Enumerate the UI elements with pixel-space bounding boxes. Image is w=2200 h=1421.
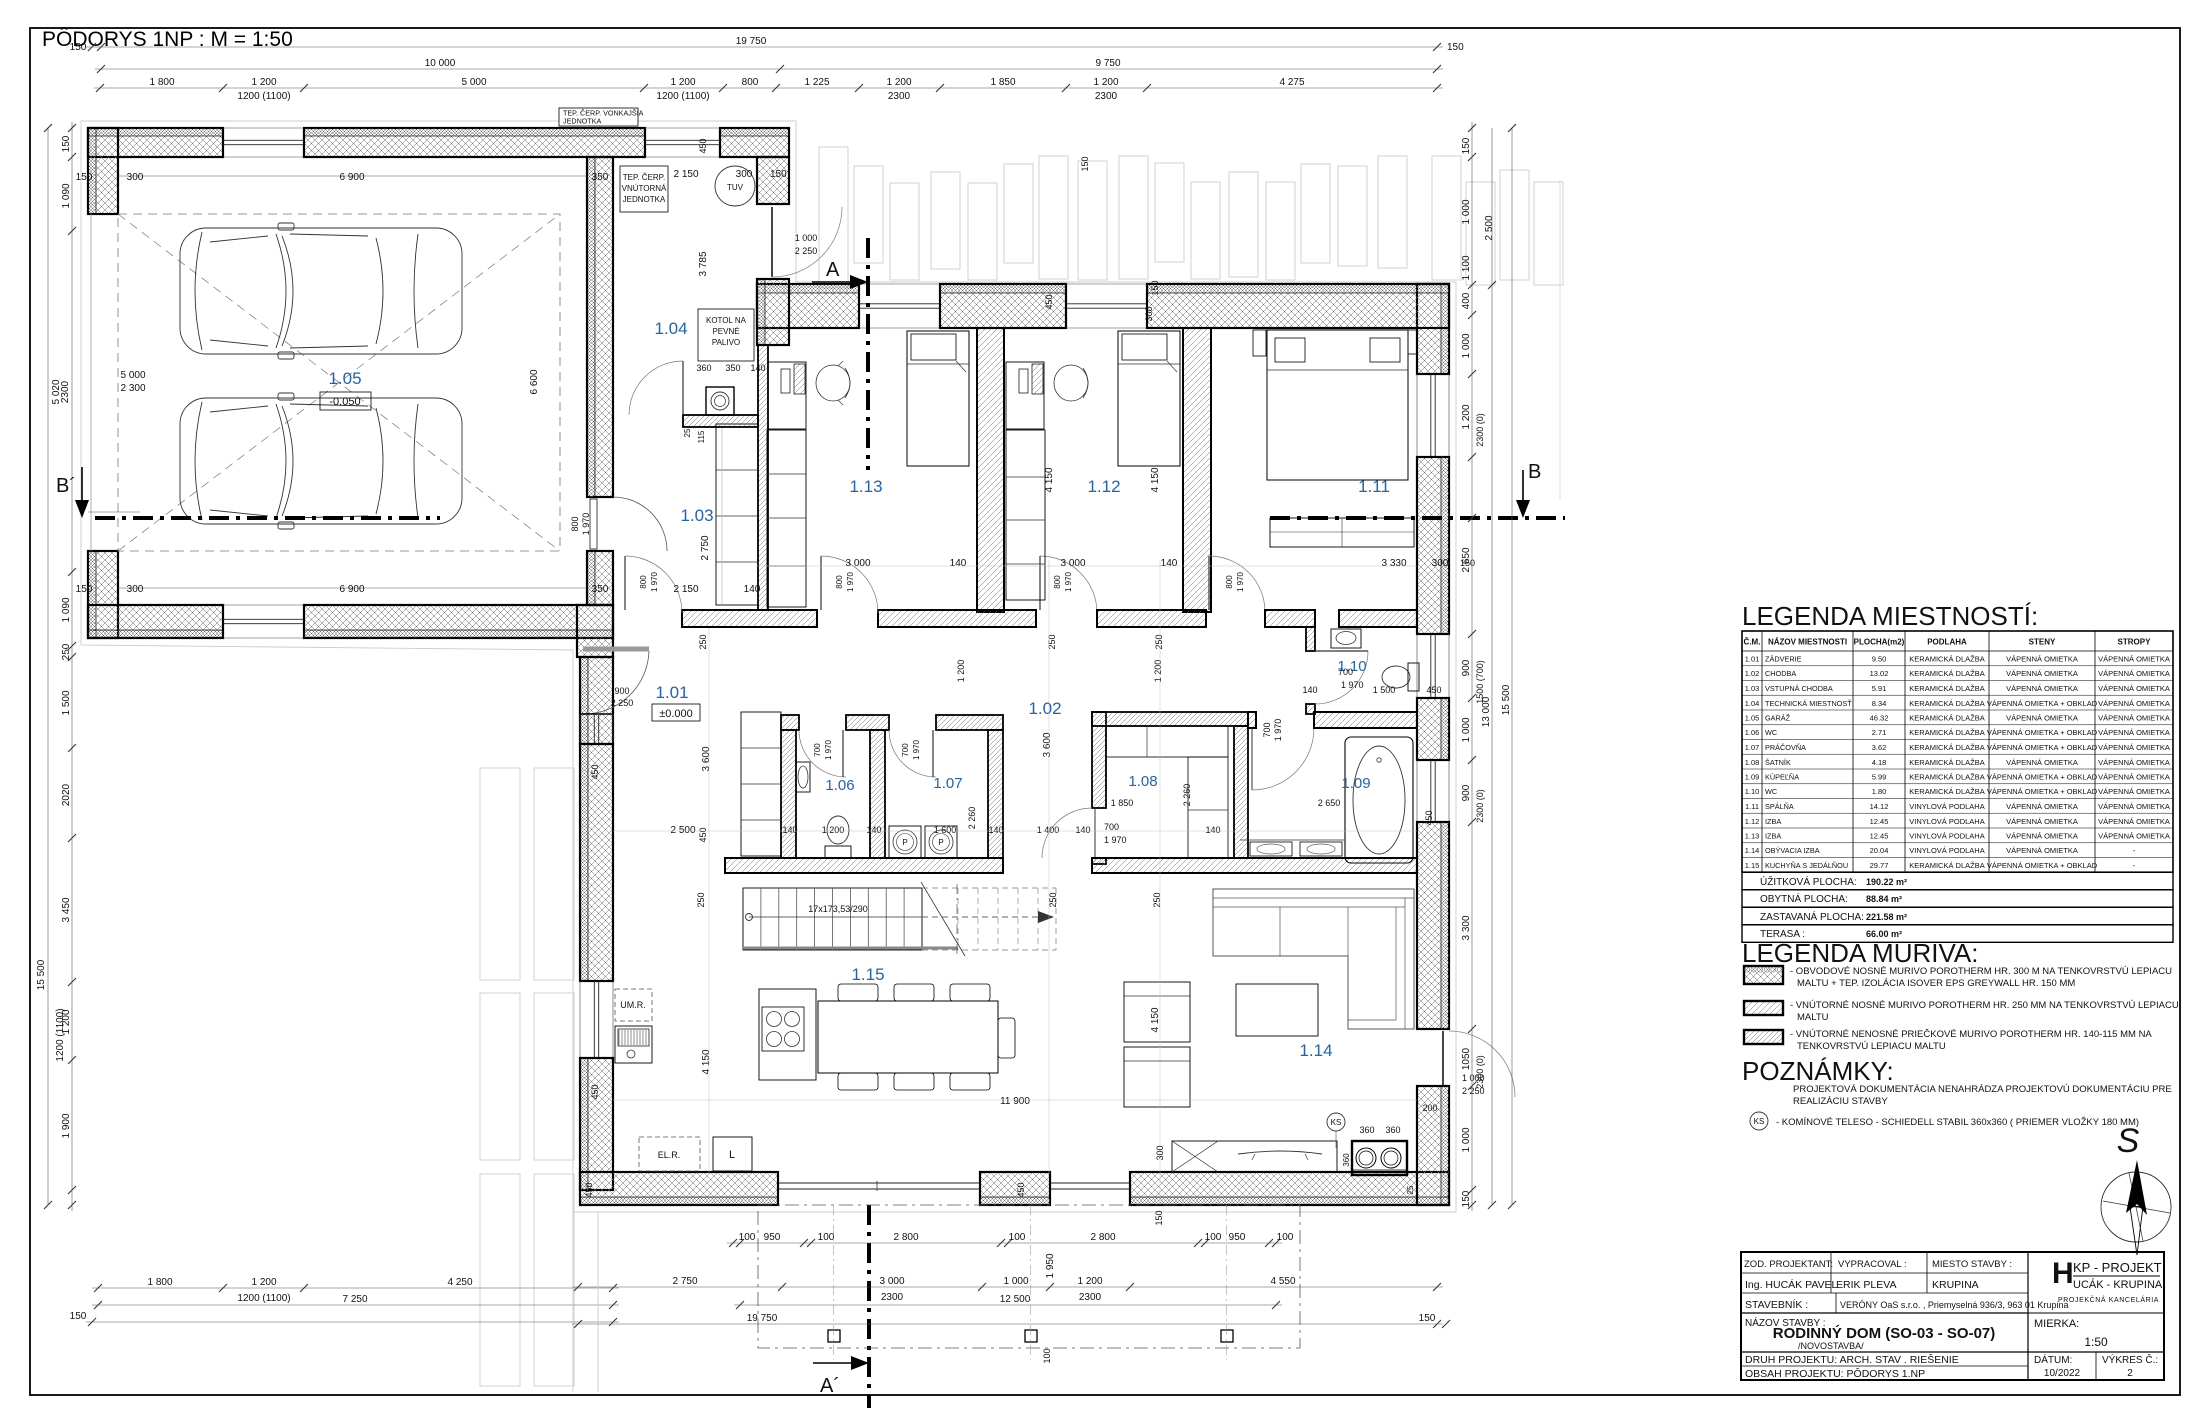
svg-text:2020: 2020	[61, 783, 72, 806]
svg-text:11 900: 11 900	[1000, 1096, 1030, 1107]
svg-text:150: 150	[1080, 156, 1090, 171]
svg-text:VERÓNY OaS s.r.o. , Priemyseln: VERÓNY OaS s.r.o. , Priemyselná 936/3, 9…	[1840, 1300, 2068, 1310]
svg-text:Č.M.: Č.M.	[1744, 638, 1761, 647]
svg-text:10/2022: 10/2022	[2044, 1368, 2081, 1379]
svg-text:TEP. ČERP.: TEP. ČERP.	[623, 173, 665, 182]
svg-text:SPÁLŇA: SPÁLŇA	[1765, 802, 1794, 811]
svg-text:1 800: 1 800	[147, 1277, 172, 1288]
svg-text:6 900: 6 900	[339, 172, 364, 183]
svg-text:1 400: 1 400	[1037, 825, 1060, 835]
svg-text:TENKOVRSTVÚ LEPIACU MALTU: TENKOVRSTVÚ LEPIACU MALTU	[1797, 1041, 1946, 1052]
svg-text:1 970: 1 970	[846, 571, 855, 592]
svg-text:700: 700	[813, 743, 822, 757]
svg-text:1.80: 1.80	[1872, 787, 1887, 796]
svg-text:100: 100	[1205, 1232, 1222, 1243]
svg-text:VÁPENNÁ OMIETKA: VÁPENNÁ OMIETKA	[2098, 802, 2170, 811]
svg-text:1 970: 1 970	[650, 571, 659, 592]
svg-text:1 090: 1 090	[61, 597, 72, 622]
svg-text:140: 140	[750, 363, 765, 373]
svg-text:Ing. HUCÁK PAVEL: Ing. HUCÁK PAVEL	[1745, 1278, 1838, 1291]
svg-text:REALIZÁCIU STAVBY: REALIZÁCIU STAVBY	[1793, 1096, 1888, 1107]
svg-text:4 250: 4 250	[447, 1277, 472, 1288]
svg-text:400: 400	[1461, 292, 1472, 309]
svg-text:900: 900	[614, 686, 629, 696]
svg-text:450: 450	[590, 1084, 600, 1099]
svg-text:3 450: 3 450	[61, 897, 72, 922]
svg-text:1 200: 1 200	[1093, 77, 1118, 88]
svg-text:1.14: 1.14	[1299, 1041, 1332, 1060]
svg-text:VINYLOVÁ PODLAHA: VINYLOVÁ PODLAHA	[1909, 802, 1984, 811]
svg-text:KERAMICKÁ DLAŽBA: KERAMICKÁ DLAŽBA	[1909, 787, 1984, 796]
svg-text:150: 150	[70, 1311, 87, 1322]
svg-text:1.05: 1.05	[328, 369, 361, 388]
svg-text:150: 150	[1447, 42, 1464, 53]
svg-text:KERAMICKÁ DLAŽBA: KERAMICKÁ DLAŽBA	[1909, 773, 1984, 782]
svg-text:19 750: 19 750	[736, 36, 767, 47]
svg-text:2: 2	[2127, 1368, 2133, 1379]
svg-text:KERAMICKÁ DLAŽBA: KERAMICKÁ DLAŽBA	[1909, 758, 1984, 767]
svg-text:1.11: 1.11	[1745, 802, 1759, 811]
svg-text:ZÁDVERIE: ZÁDVERIE	[1765, 655, 1802, 664]
svg-text:VÁPENNÁ OMIETKA + OBKLAD: VÁPENNÁ OMIETKA + OBKLAD	[1987, 728, 2098, 737]
svg-text:4.18: 4.18	[1872, 758, 1887, 767]
svg-text:29.77: 29.77	[1870, 861, 1889, 870]
svg-text:3 600: 3 600	[701, 746, 712, 771]
svg-text:1200 (1100): 1200 (1100)	[237, 1293, 290, 1304]
svg-text:VÁPENNÁ OMIETKA: VÁPENNÁ OMIETKA	[2006, 714, 2078, 723]
svg-text:KS: KS	[1754, 1117, 1765, 1126]
svg-text:CHODBA: CHODBA	[1765, 669, 1796, 678]
svg-text:150: 150	[1461, 1190, 1472, 1207]
svg-text:VÁPENNÁ OMIETKA: VÁPENNÁ OMIETKA	[2098, 655, 2170, 664]
svg-text:VSTUPNÁ CHODBA: VSTUPNÁ CHODBA	[1765, 684, 1833, 693]
svg-text:1.06: 1.06	[1745, 728, 1760, 737]
svg-text:1.04: 1.04	[1745, 699, 1760, 708]
svg-text:150: 150	[76, 584, 93, 595]
svg-text:KERAMICKÁ DLAŽBA: KERAMICKÁ DLAŽBA	[1909, 684, 1984, 693]
svg-text:KUCHYŇA S JEDÁLŇOU: KUCHYŇA S JEDÁLŇOU	[1765, 861, 1848, 870]
svg-text:VÁPENNÁ OMIETKA: VÁPENNÁ OMIETKA	[2098, 669, 2170, 678]
svg-text:MIESTO STAVBY :: MIESTO STAVBY :	[1932, 1259, 2012, 1270]
svg-text:3 330: 3 330	[1381, 558, 1406, 569]
svg-text:POZNÁMKY:: POZNÁMKY:	[1742, 1056, 1894, 1086]
svg-text:900: 900	[1461, 784, 1472, 801]
svg-text:1 970: 1 970	[912, 739, 921, 760]
svg-text:PEVNÉ: PEVNÉ	[712, 327, 739, 336]
svg-text:- OBVODOVÉ NOSNÉ MURIVO POROTH: - OBVODOVÉ NOSNÉ MURIVO POROTHERM HR. 30…	[1790, 966, 2172, 977]
svg-text:3 000: 3 000	[879, 1276, 904, 1287]
svg-text:14.12: 14.12	[1870, 802, 1889, 811]
svg-text:KÚPEĽŇA: KÚPEĽŇA	[1765, 773, 1799, 782]
svg-text:1 970: 1 970	[581, 513, 591, 536]
svg-text:17x173,53/290: 17x173,53/290	[808, 904, 868, 914]
svg-text:1.15: 1.15	[851, 965, 884, 984]
svg-text:VÁPENNÁ OMIETKA + OBKLAD: VÁPENNÁ OMIETKA + OBKLAD	[1987, 773, 2098, 782]
svg-text:950: 950	[1229, 1232, 1246, 1243]
svg-text:2 150: 2 150	[673, 584, 698, 595]
svg-text:1.04: 1.04	[654, 319, 687, 338]
svg-text:360: 360	[1359, 1125, 1374, 1135]
svg-text:140: 140	[1161, 558, 1178, 569]
svg-text:9.50: 9.50	[1872, 655, 1887, 664]
svg-text:VÁPENNÁ OMIETKA + OBKLAD: VÁPENNÁ OMIETKA + OBKLAD	[1987, 861, 2098, 870]
svg-text:KRUPINA: KRUPINA	[1932, 1279, 1979, 1291]
svg-text:VÁPENNÁ OMIETKA: VÁPENNÁ OMIETKA	[2098, 773, 2170, 782]
svg-text:140: 140	[1205, 825, 1220, 835]
svg-text:1 970: 1 970	[1236, 571, 1245, 592]
svg-text:350: 350	[725, 363, 740, 373]
svg-text:190.22 m²: 190.22 m²	[1866, 877, 1907, 887]
svg-text:ZASTAVANÁ PLOCHA:: ZASTAVANÁ PLOCHA:	[1760, 910, 1864, 923]
svg-text:950: 950	[764, 1232, 781, 1243]
svg-text:4 275: 4 275	[1279, 77, 1304, 88]
svg-text:3 000: 3 000	[845, 558, 870, 569]
svg-text:150: 150	[1419, 1313, 1436, 1324]
svg-text:4 150: 4 150	[701, 1049, 712, 1074]
svg-text:OBSAH PROJEKTU: PÔDORYS 1.NP: OBSAH PROJEKTU: PÔDORYS 1.NP	[1745, 1367, 1925, 1380]
svg-text:VÁPENNÁ OMIETKA + OBKLAD: VÁPENNÁ OMIETKA + OBKLAD	[1987, 743, 2098, 752]
svg-text:VÁPENNÁ OMIETKA: VÁPENNÁ OMIETKA	[2098, 714, 2170, 723]
svg-text:2300: 2300	[888, 91, 911, 102]
svg-text:1 970: 1 970	[1273, 719, 1283, 742]
svg-text:140: 140	[950, 558, 967, 569]
svg-text:6 600: 6 600	[529, 369, 540, 394]
svg-text:700: 700	[1338, 667, 1353, 677]
svg-text:450: 450	[1044, 294, 1054, 309]
svg-text:ÚŽITKOVÁ PLOCHA:: ÚŽITKOVÁ PLOCHA:	[1760, 875, 1857, 888]
svg-text:LEGENDA MIESTNOSTÍ:: LEGENDA MIESTNOSTÍ:	[1742, 601, 2038, 631]
svg-text:1.12: 1.12	[1745, 817, 1760, 826]
svg-text:2300: 2300	[881, 1292, 904, 1303]
svg-text:S: S	[2117, 1122, 2140, 1160]
svg-text:12.45: 12.45	[1870, 817, 1889, 826]
svg-text:VÁPENNÁ OMIETKA: VÁPENNÁ OMIETKA	[2006, 817, 2078, 826]
svg-text:VÁPENNÁ OMIETKA: VÁPENNÁ OMIETKA	[2006, 802, 2078, 811]
svg-text:2300: 2300	[60, 380, 71, 403]
svg-text:VÁPENNÁ OMIETKA: VÁPENNÁ OMIETKA	[2098, 743, 2170, 752]
svg-text:ERIK PLEVA: ERIK PLEVA	[1836, 1279, 1897, 1291]
svg-text:100: 100	[818, 1232, 835, 1243]
svg-text:25: 25	[1406, 1185, 1415, 1194]
svg-text:2 250: 2 250	[795, 246, 818, 256]
svg-text:15 500: 15 500	[1501, 684, 1512, 715]
svg-text:MIERKA:: MIERKA:	[2034, 1318, 2079, 1330]
svg-text:2300 (0): 2300 (0)	[1475, 413, 1485, 447]
svg-text:25: 25	[683, 428, 692, 437]
svg-text:13 000: 13 000	[1481, 696, 1492, 727]
svg-text:VÝKRES Č.:: VÝKRES Č.:	[2102, 1353, 2158, 1366]
svg-text:1 200: 1 200	[886, 77, 911, 88]
svg-text:350: 350	[592, 584, 609, 595]
svg-text:2 260: 2 260	[1182, 784, 1192, 807]
svg-text:150: 150	[770, 169, 787, 180]
svg-text:150: 150	[1154, 1210, 1164, 1225]
svg-text:1 000: 1 000	[795, 233, 818, 243]
svg-text:KERAMICKÁ DLAŽBA: KERAMICKÁ DLAŽBA	[1909, 655, 1984, 664]
svg-text:250: 250	[1047, 634, 1057, 649]
svg-text:2 750: 2 750	[672, 1276, 697, 1287]
svg-text:VÁPENNÁ OMIETKA: VÁPENNÁ OMIETKA	[2006, 758, 2078, 767]
svg-text:1 200: 1 200	[1461, 404, 1472, 429]
svg-text:350: 350	[592, 172, 609, 183]
svg-text:VÁPENNÁ OMIETKA: VÁPENNÁ OMIETKA	[2006, 846, 2078, 855]
svg-text:1 850: 1 850	[1111, 798, 1134, 808]
svg-text:WC: WC	[1765, 787, 1777, 796]
svg-text:1.03: 1.03	[1745, 684, 1760, 693]
svg-text:46.32: 46.32	[1870, 714, 1889, 723]
svg-text:VÁPENNÁ OMIETKA: VÁPENNÁ OMIETKA	[2098, 728, 2170, 737]
svg-text:100: 100	[1009, 1232, 1026, 1243]
svg-text:100: 100	[739, 1232, 756, 1243]
svg-text:1.07: 1.07	[1745, 743, 1760, 752]
svg-text:KS: KS	[1331, 1118, 1342, 1127]
svg-text:VÁPENNÁ OMIETKA: VÁPENNÁ OMIETKA	[2098, 758, 2170, 767]
svg-text:1 970: 1 970	[1064, 571, 1073, 592]
svg-text:300: 300	[736, 169, 753, 180]
svg-text:9 750: 9 750	[1095, 58, 1120, 69]
svg-text:250: 250	[698, 634, 708, 649]
svg-text:TUV: TUV	[727, 183, 744, 192]
svg-text:1.02: 1.02	[1028, 699, 1061, 718]
svg-text:2 650: 2 650	[1318, 798, 1341, 808]
svg-text:KERAMICKÁ DLAŽBA: KERAMICKÁ DLAŽBA	[1909, 699, 1984, 708]
svg-text:2 250: 2 250	[611, 698, 634, 708]
svg-text:250: 250	[696, 892, 706, 907]
svg-text:900: 900	[1461, 659, 1472, 676]
svg-text:-0.050: -0.050	[329, 396, 360, 408]
svg-text:450: 450	[584, 1182, 594, 1197]
svg-text:221.58 m²: 221.58 m²	[1866, 912, 1907, 922]
svg-text:1 970: 1 970	[1104, 835, 1127, 845]
svg-text:1.03: 1.03	[680, 506, 713, 525]
svg-text:H: H	[2052, 1257, 2074, 1290]
svg-text:3 785: 3 785	[698, 251, 709, 276]
svg-text:VÁPENNÁ OMIETKA: VÁPENNÁ OMIETKA	[2006, 832, 2078, 841]
svg-text:1.08: 1.08	[1745, 758, 1760, 767]
svg-text:4 150: 4 150	[1044, 467, 1055, 492]
svg-text:KERAMICKÁ DLAŽBA: KERAMICKÁ DLAŽBA	[1909, 861, 1984, 870]
svg-text:B: B	[1528, 461, 1541, 483]
svg-text:360: 360	[1385, 1125, 1400, 1135]
svg-text:1 000: 1 000	[1461, 199, 1472, 224]
svg-text:3 000: 3 000	[1060, 558, 1085, 569]
svg-text:VÁPENNÁ OMIETKA: VÁPENNÁ OMIETKA	[2006, 655, 2078, 664]
svg-text:1 200: 1 200	[1153, 660, 1163, 683]
svg-text:140: 140	[866, 825, 881, 835]
svg-text:450: 450	[590, 764, 600, 779]
svg-text:1 200: 1 200	[1077, 1276, 1102, 1287]
svg-text:450: 450	[1016, 1182, 1026, 1197]
svg-text:1 200: 1 200	[251, 1277, 276, 1288]
svg-text:1200 (1100): 1200 (1100)	[55, 1008, 66, 1061]
svg-text:1 500: 1 500	[1373, 685, 1396, 695]
svg-text:150: 150	[1150, 280, 1160, 295]
svg-text:GARÁŽ: GARÁŽ	[1765, 714, 1791, 723]
svg-text:200: 200	[1422, 1103, 1437, 1113]
svg-text:150: 150	[61, 135, 72, 152]
svg-text:700: 700	[901, 743, 910, 757]
svg-text:RODINNÝ DOM (SO-03 - SO-07): RODINNÝ DOM (SO-03 - SO-07)	[1773, 1324, 1996, 1342]
svg-text:450: 450	[698, 827, 708, 842]
svg-text:4 550: 4 550	[1270, 1276, 1295, 1287]
svg-text:VINYLOVÁ PODLAHA: VINYLOVÁ PODLAHA	[1909, 832, 1984, 841]
svg-text:1200 (1100): 1200 (1100)	[237, 91, 290, 102]
svg-text:VÁPENNÁ OMIETKA: VÁPENNÁ OMIETKA	[2098, 684, 2170, 693]
svg-text:360: 360	[1342, 1153, 1351, 1167]
svg-text:UM.R.: UM.R.	[620, 1000, 646, 1010]
svg-text:12.45: 12.45	[1870, 832, 1889, 841]
svg-text:450: 450	[1426, 685, 1441, 695]
svg-text:800: 800	[1053, 575, 1062, 589]
svg-text:/NOVOSTAVBA/: /NOVOSTAVBA/	[1798, 1341, 1864, 1351]
svg-text:STENY: STENY	[2029, 638, 2056, 647]
svg-text:1.15: 1.15	[1745, 861, 1760, 870]
svg-text:VNÚTORNÁ: VNÚTORNÁ	[622, 184, 667, 193]
svg-text:WC: WC	[1765, 728, 1777, 737]
svg-text:VYPRACOVAL :: VYPRACOVAL :	[1838, 1259, 1907, 1270]
svg-text:1 000: 1 000	[1461, 1127, 1472, 1152]
svg-text:2 650: 2 650	[1461, 547, 1472, 572]
svg-text:140: 140	[744, 584, 761, 595]
svg-text:1 970: 1 970	[824, 739, 833, 760]
svg-text:140: 140	[1075, 825, 1090, 835]
svg-text:- VNÚTORNÉ NOSNÉ MURIVO POROTH: - VNÚTORNÉ NOSNÉ MURIVO POROTHERM HR. 25…	[1790, 1000, 2179, 1011]
svg-text:450: 450	[1424, 810, 1434, 825]
svg-text:1 800: 1 800	[149, 77, 174, 88]
svg-text:1 900: 1 900	[61, 1113, 72, 1138]
svg-text:1 000: 1 000	[1461, 333, 1472, 358]
svg-text:3.62: 3.62	[1872, 743, 1887, 752]
svg-text:P: P	[902, 838, 907, 847]
svg-text:VÁPENNÁ OMIETKA + OBKLAD: VÁPENNÁ OMIETKA + OBKLAD	[1987, 787, 2098, 796]
svg-text:1 950: 1 950	[1045, 1253, 1056, 1278]
svg-text:VÁPENNÁ OMIETKA + OBKLAD: VÁPENNÁ OMIETKA + OBKLAD	[1987, 699, 2098, 708]
svg-text:KERAMICKÁ DLAŽBA: KERAMICKÁ DLAŽBA	[1909, 714, 1984, 723]
svg-text:VÁPENNÁ OMIETKA: VÁPENNÁ OMIETKA	[2098, 699, 2170, 708]
svg-text:KOTOL NA: KOTOL NA	[706, 316, 747, 325]
svg-text:STROPY: STROPY	[2118, 638, 2152, 647]
svg-text:KERAMICKÁ DLAŽBA: KERAMICKÁ DLAŽBA	[1909, 728, 1984, 737]
svg-text:360: 360	[696, 363, 711, 373]
svg-text:PROJEKTOVÁ DOKUMENTÁCIA NENAHR: PROJEKTOVÁ DOKUMENTÁCIA NENAHRÁDZA PROJE…	[1793, 1084, 2172, 1095]
svg-text:A´: A´	[820, 1375, 840, 1397]
svg-text:13.02: 13.02	[1870, 669, 1889, 678]
svg-text:150: 150	[1461, 137, 1472, 154]
svg-text:2 300: 2 300	[120, 383, 145, 394]
svg-text:1.09: 1.09	[1341, 775, 1370, 792]
svg-text:700: 700	[1104, 822, 1119, 832]
svg-text:EL.R.: EL.R.	[658, 1150, 681, 1160]
svg-text:2.71: 2.71	[1872, 728, 1887, 737]
svg-text:300: 300	[127, 584, 144, 595]
svg-text:2 150: 2 150	[673, 169, 698, 180]
svg-text:B´: B´	[56, 475, 76, 497]
svg-text:PLOCHA(m2): PLOCHA(m2)	[1854, 638, 1905, 647]
svg-text:1 000: 1 000	[1003, 1276, 1028, 1287]
svg-text:MALTU: MALTU	[1797, 1012, 1829, 1023]
svg-text:700: 700	[1262, 722, 1272, 737]
svg-text:800: 800	[1225, 575, 1234, 589]
svg-text:ZOD. PROJEKTANT:: ZOD. PROJEKTANT:	[1744, 1259, 1833, 1270]
svg-text:450: 450	[698, 138, 708, 153]
svg-text:300: 300	[127, 172, 144, 183]
svg-text:5 000: 5 000	[461, 77, 486, 88]
svg-text:UCÁK - KRUPINA: UCÁK - KRUPINA	[2073, 1278, 2163, 1291]
svg-text:1.14: 1.14	[1745, 846, 1760, 855]
svg-text:4 150: 4 150	[1150, 1007, 1161, 1032]
svg-text:DÁTUM:: DÁTUM:	[2034, 1353, 2072, 1366]
svg-text:250: 250	[1154, 634, 1164, 649]
svg-text:1.10: 1.10	[1745, 787, 1760, 796]
svg-text:3 600: 3 600	[1042, 732, 1053, 757]
svg-text:1 200: 1 200	[251, 77, 276, 88]
svg-text:IZBA: IZBA	[1765, 832, 1781, 841]
svg-text:800: 800	[835, 575, 844, 589]
svg-text:KERAMICKÁ DLAŽBA: KERAMICKÁ DLAŽBA	[1909, 743, 1984, 752]
svg-text:±0.000: ±0.000	[659, 708, 693, 720]
svg-text:6 900: 6 900	[339, 584, 364, 595]
svg-text:1050: 1050	[1461, 1047, 1472, 1070]
svg-text:20.04: 20.04	[1870, 846, 1889, 855]
svg-text:100: 100	[1042, 1348, 1052, 1363]
svg-text:88.84 m²: 88.84 m²	[1866, 894, 1902, 904]
svg-text:800: 800	[570, 516, 580, 531]
svg-text:150: 150	[76, 172, 93, 183]
svg-text:140: 140	[782, 825, 797, 835]
svg-text:19 750: 19 750	[747, 1313, 778, 1324]
svg-text:300: 300	[1155, 1145, 1165, 1160]
svg-text:1.06: 1.06	[825, 777, 854, 794]
svg-text:2 260: 2 260	[967, 807, 977, 830]
svg-text:IZBA: IZBA	[1765, 817, 1781, 826]
svg-text:1 225: 1 225	[804, 77, 829, 88]
svg-text:4 150: 4 150	[1150, 467, 1161, 492]
svg-text:VÁPENNÁ OMIETKA: VÁPENNÁ OMIETKA	[2098, 817, 2170, 826]
svg-text:P: P	[938, 838, 943, 847]
svg-text:800: 800	[639, 575, 648, 589]
svg-text:PRÁČOVŇA: PRÁČOVŇA	[1765, 743, 1806, 752]
svg-text:VÁPENNÁ OMIETKA: VÁPENNÁ OMIETKA	[2098, 787, 2170, 796]
svg-text:- VNÚTORNÉ NENOSNÉ PRIEČKOVÉ M: - VNÚTORNÉ NENOSNÉ PRIEČKOVÉ MURIVO PORO…	[1790, 1029, 2152, 1040]
svg-text:3 300: 3 300	[1461, 915, 1472, 940]
svg-text:PODLAHA: PODLAHA	[1927, 638, 1967, 647]
svg-text:1 200: 1 200	[670, 77, 695, 88]
svg-text:1 200: 1 200	[956, 660, 966, 683]
svg-text:1 000: 1 000	[1461, 717, 1472, 742]
svg-text:VINYLOVÁ PODLAHA: VINYLOVÁ PODLAHA	[1909, 817, 1984, 826]
svg-text:250: 250	[61, 643, 72, 660]
svg-text:1.01: 1.01	[1745, 655, 1760, 664]
svg-text:1.05: 1.05	[1745, 714, 1760, 723]
svg-text:12 500: 12 500	[1000, 1294, 1031, 1305]
svg-text:140: 140	[988, 825, 1003, 835]
svg-text:1 100: 1 100	[1461, 255, 1472, 280]
svg-text:2 500: 2 500	[1484, 215, 1495, 240]
svg-text:1.02: 1.02	[1745, 669, 1760, 678]
svg-text:VÁPENNÁ OMIETKA: VÁPENNÁ OMIETKA	[2098, 832, 2170, 841]
svg-text:2 750: 2 750	[700, 535, 711, 560]
svg-text:5.91: 5.91	[1872, 684, 1887, 693]
svg-text:250: 250	[1048, 892, 1058, 907]
svg-text:TECHNICKÁ MIESTNOSŤ: TECHNICKÁ MIESTNOSŤ	[1765, 699, 1852, 708]
svg-text:2300 (0): 2300 (0)	[1475, 789, 1485, 823]
svg-text:L: L	[729, 1149, 735, 1161]
svg-text:2300: 2300	[1095, 91, 1118, 102]
svg-text:1.09: 1.09	[1745, 773, 1760, 782]
svg-text:ŠATNÍK: ŠATNÍK	[1765, 758, 1791, 767]
svg-text:2300 (0): 2300 (0)	[1475, 1055, 1485, 1089]
svg-text:1 500: 1 500	[61, 690, 72, 715]
